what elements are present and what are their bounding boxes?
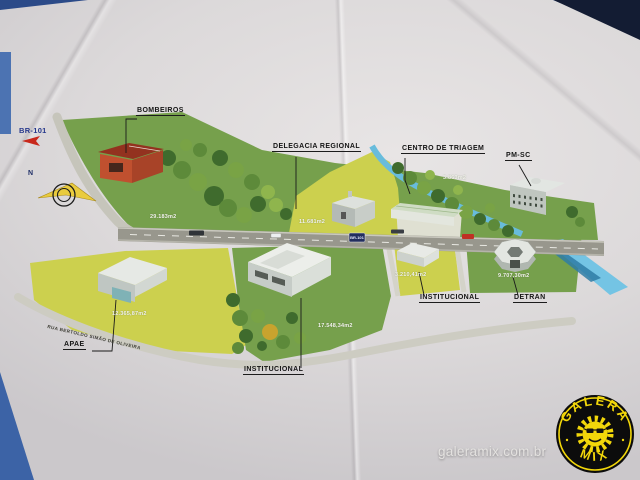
br101-arrow-icon (22, 136, 40, 146)
label-delegacia-regional: DELEGACIA REGIONAL (272, 143, 361, 152)
logo-dot-left (566, 439, 568, 441)
area-triagem: 3.863m2 (443, 175, 466, 181)
area-institucional-sul: 17.548,34m2 (318, 323, 353, 329)
label-institucional-leste: INSTITUCIONAL (419, 294, 480, 303)
site-plan-drawing (0, 0, 640, 480)
compass-north-label: N (28, 170, 33, 177)
label-centro-de-triagem: CENTRO DE TRIAGEM (401, 145, 485, 154)
label-pm-sc: PM-SC (505, 152, 532, 161)
area-bombeiros: 29.183m2 (150, 214, 176, 220)
logo-dot-right (622, 439, 624, 441)
label-institucional-sul: INSTITUCIONAL (243, 366, 304, 375)
road-shield-label: BR-101 (349, 235, 365, 240)
area-institucional-leste: 3.210,41m2 (395, 272, 426, 278)
area-apae: 12.365,87m2 (112, 311, 147, 317)
table-edge-left (0, 52, 11, 134)
label-bombeiros: BOMBEIROS (136, 107, 185, 116)
area-delegacia: 11.681m2 (299, 219, 325, 225)
watermark-url: galeramix.com.br (438, 444, 546, 459)
br101-label: BR-101 (19, 126, 47, 135)
label-apae: APAE (63, 341, 86, 350)
site-plan-paper: BR-101 N BOMBEIROS DELEGACIA REGIONAL CE… (0, 0, 640, 480)
galera-mix-logo: GALERA MIX (553, 392, 637, 476)
photo-of-site-plan: BR-101 N BOMBEIROS DELEGACIA REGIONAL CE… (0, 0, 640, 480)
label-detran: DETRAN (513, 294, 547, 303)
area-detran: 9.707,30m2 (498, 273, 529, 279)
